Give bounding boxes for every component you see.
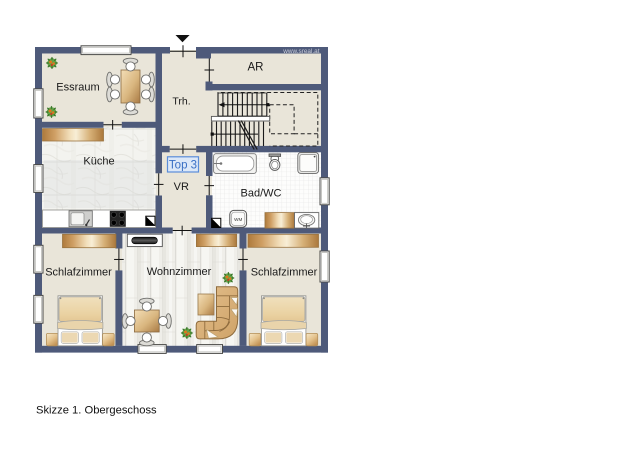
svg-text:Trh.: Trh. — [172, 96, 190, 108]
svg-text:Schlafzimmer: Schlafzimmer — [251, 267, 318, 279]
svg-text:Essraum: Essraum — [56, 82, 99, 94]
svg-text:Wohnzimmer: Wohnzimmer — [147, 266, 212, 278]
svg-text:Top 3: Top 3 — [169, 160, 197, 172]
svg-text:Bad/WC: Bad/WC — [241, 188, 282, 200]
svg-text:Schlafzimmer: Schlafzimmer — [45, 267, 112, 279]
svg-text:Küche: Küche — [83, 156, 114, 168]
svg-text:www.sreal.at: www.sreal.at — [282, 48, 319, 55]
svg-text:AR: AR — [248, 62, 264, 74]
svg-text:Skizze 1. Obergeschoss: Skizze 1. Obergeschoss — [36, 405, 157, 417]
svg-text:WM: WM — [234, 217, 242, 222]
svg-text:VR: VR — [174, 181, 189, 193]
